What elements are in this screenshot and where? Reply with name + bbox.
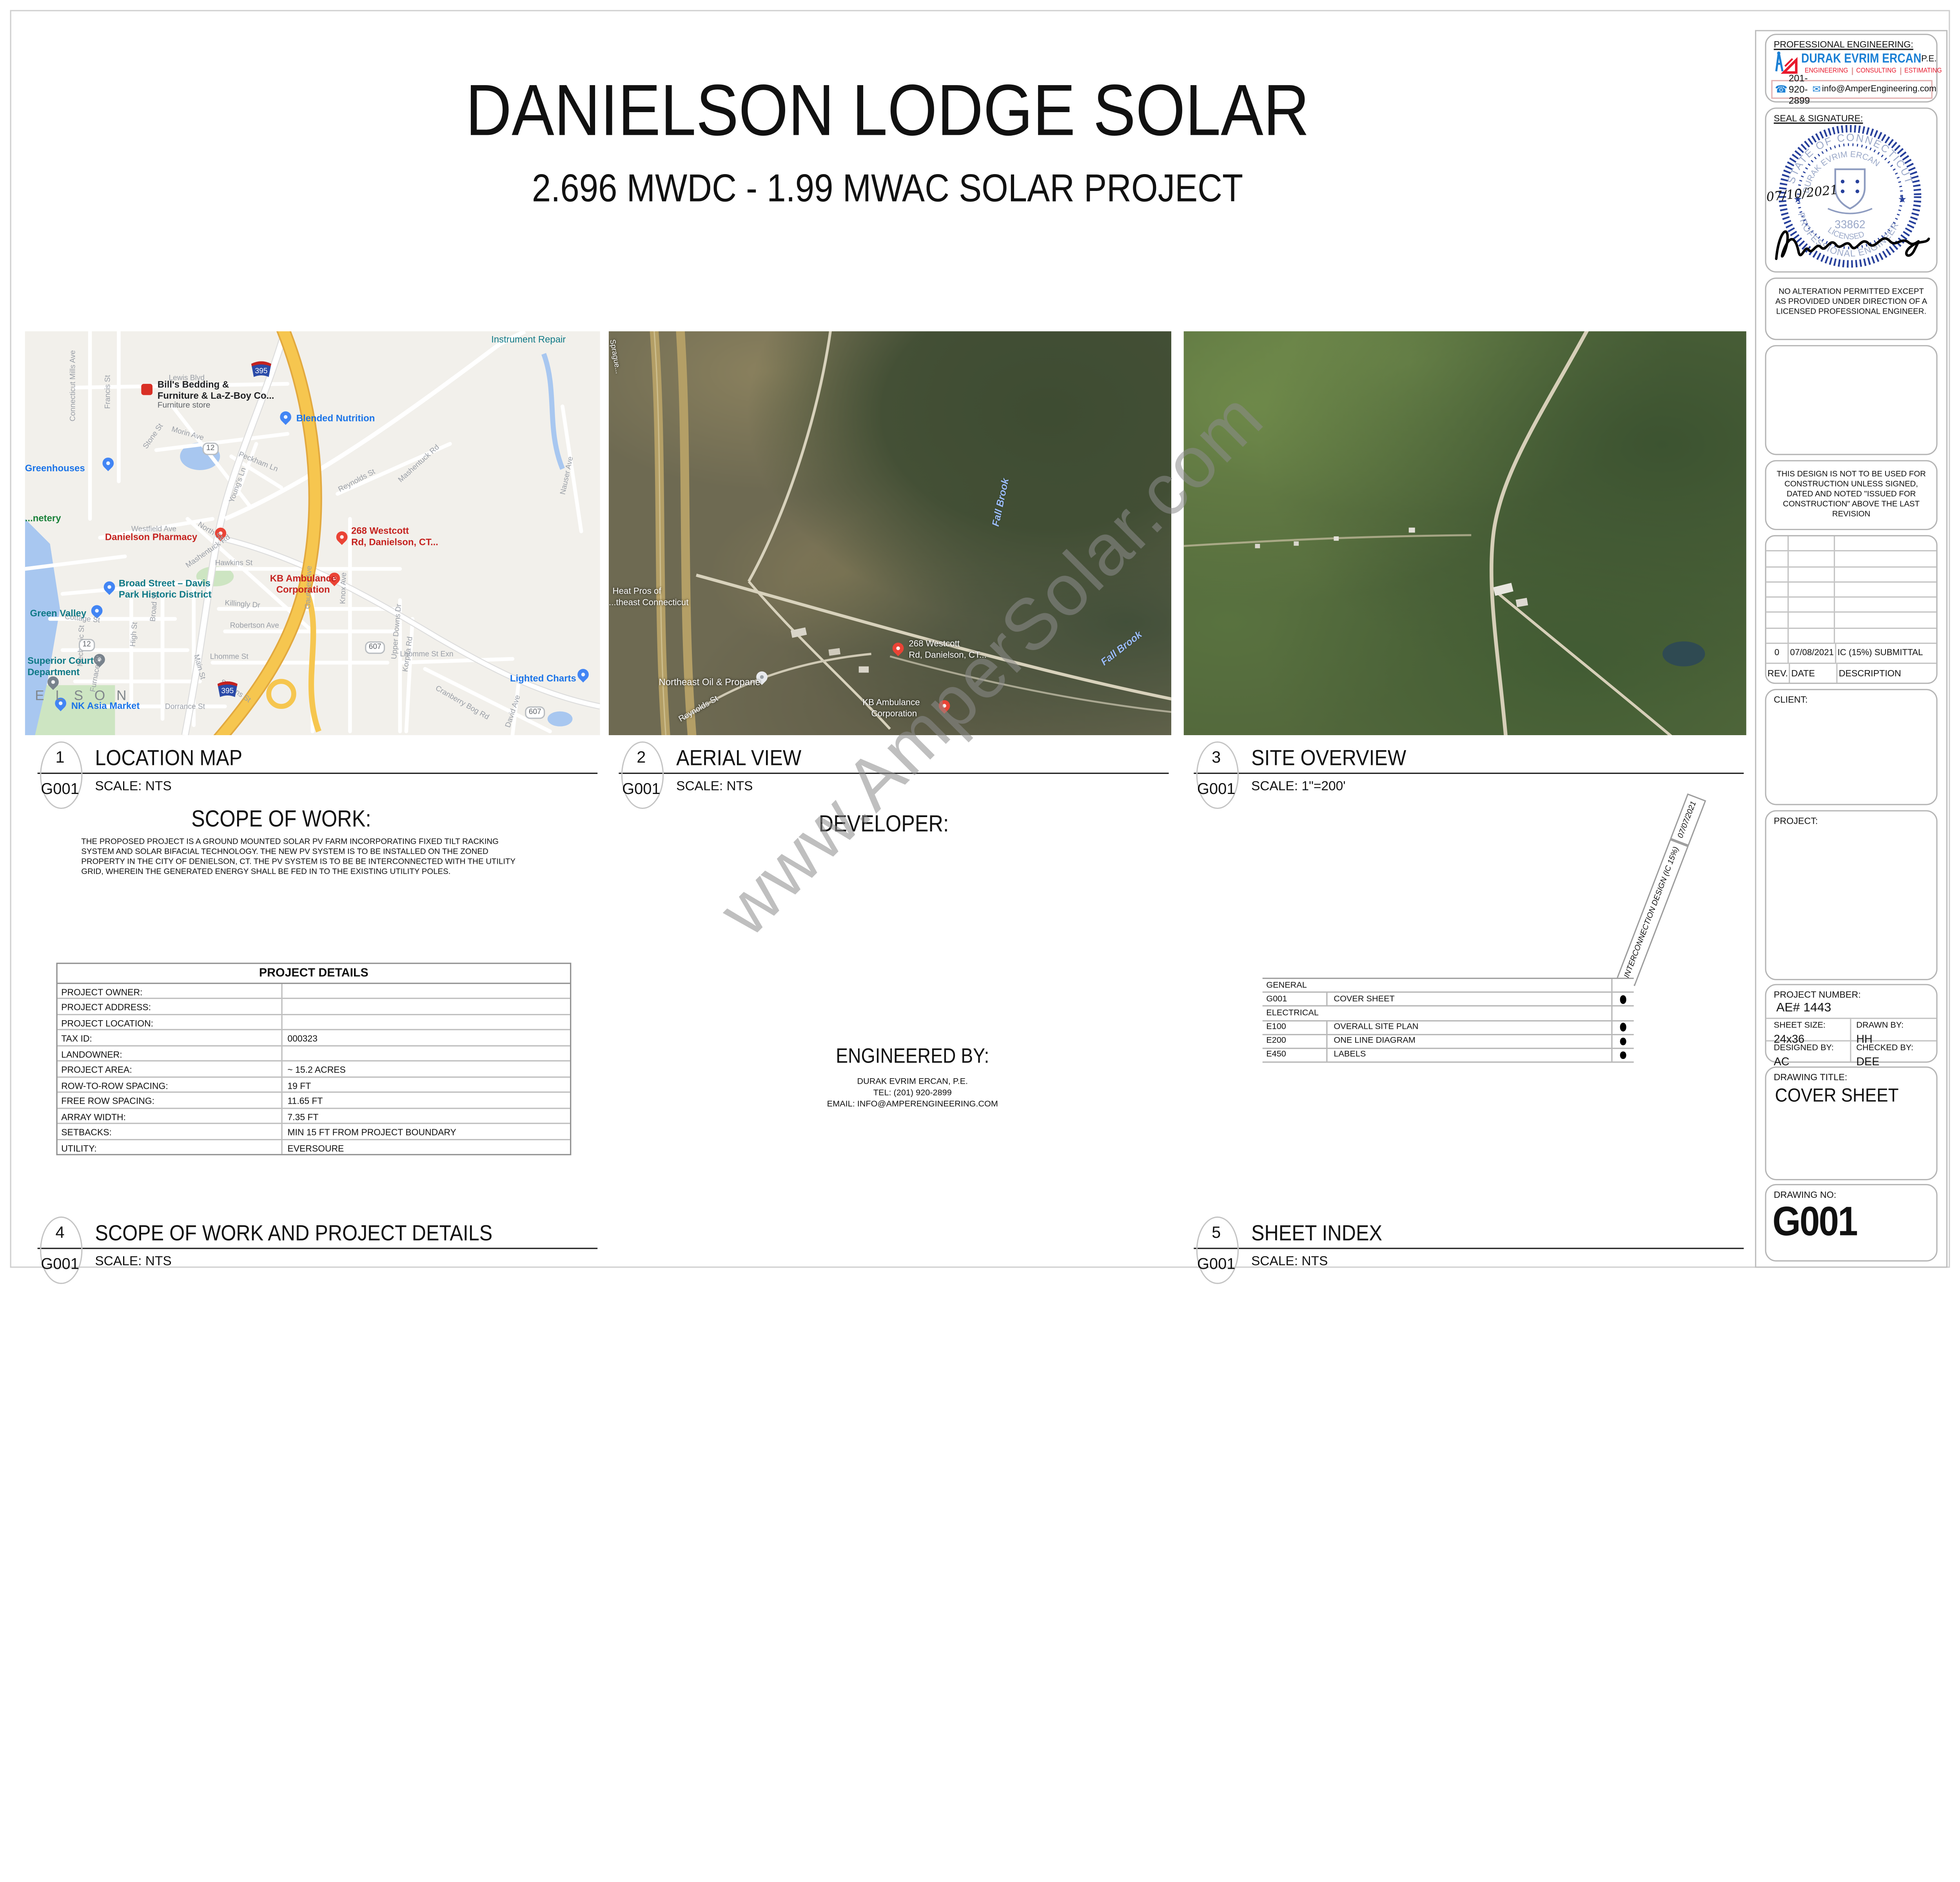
street-label: Knox Ave — [340, 572, 348, 604]
route-shield: 607 — [525, 707, 545, 719]
seal-signature-label: SEAL & SIGNATURE: — [1774, 113, 1863, 124]
panel-header-site-overview: 3 G001 SITE OVERVIEW SCALE: 1"=200' — [1194, 740, 1744, 798]
checked-by-value: DEE — [1856, 1055, 1913, 1068]
poi-label: Furniture store — [158, 401, 211, 412]
panel-number: 3 — [1196, 748, 1236, 767]
sheet-index-table: GENERAL G001COVER SHEET ELECTRICAL E100O… — [1263, 978, 1634, 1063]
engineer-name: DURAK EVRIM ERCAN, P.E. — [737, 1078, 1087, 1086]
project-title: DANIELSON LODGE SOLAR — [227, 69, 1547, 153]
empty-note-box — [1765, 345, 1938, 455]
panel-header-location-map: 1 G001 LOCATION MAP SCALE: NTS — [38, 740, 598, 798]
client-box: CLIENT: — [1765, 689, 1938, 805]
revision-empty-row — [1766, 598, 1936, 613]
route-shield: 12 — [203, 443, 218, 455]
table-row: SETBACKS:MIN 15 FT FROM PROJECT BOUNDARY — [58, 1124, 570, 1140]
interstate-shield-icon: 395 — [250, 359, 272, 378]
street-label: Lhomme St — [210, 654, 249, 661]
index-sheet-row: G001COVER SHEET — [1263, 993, 1634, 1007]
table-row: PROJECT AREA:~ 15.2 ACRES — [58, 1062, 570, 1077]
panel-number: 5 — [1196, 1223, 1236, 1242]
professional-engineering-label: PROFESSIONAL ENGINEERING: — [1774, 39, 1913, 50]
cover-sheet: DANIELSON LODGE SOLAR 2.696 MWDC - 1.99 … — [0, 0, 1960, 1306]
street-label: Dorrance St — [165, 704, 205, 711]
aerial-label: ...theast Connecticut — [609, 599, 689, 609]
drawn-by-value: HH — [1856, 1033, 1904, 1045]
panel-sheet-code: G001 — [40, 780, 80, 798]
firm-pe: P.E. — [1921, 55, 1936, 64]
included-dot-icon — [1620, 1023, 1626, 1032]
poi-label: 268 Westcott — [351, 526, 409, 536]
revision-table: 0 07/08/2021 IC (15%) SUBMITTAL REV. DAT… — [1765, 535, 1938, 684]
index-section-row: ELECTRICAL — [1263, 1007, 1634, 1021]
checked-by-cell: CHECKED BY:DEE — [1856, 1044, 1913, 1068]
panel-sheet-code: G001 — [1196, 1255, 1236, 1273]
designed-by-cell: DESIGNED BY:AC — [1774, 1044, 1834, 1068]
svg-text:★: ★ — [1898, 194, 1907, 205]
table-row: TAX ID:000323 — [58, 1031, 570, 1046]
revision-empty-row — [1766, 552, 1936, 567]
pe-signature — [1771, 219, 1931, 269]
panel-title: LOCATION MAP — [95, 745, 242, 772]
project-details-title: PROJECT DETAILS — [58, 964, 570, 984]
email-icon: ✉ — [1810, 84, 1822, 95]
panel-title: SCOPE OF WORK AND PROJECT DETAILS — [95, 1220, 492, 1246]
poi-label: KB Ambulance — [270, 574, 336, 584]
included-dot-icon — [1620, 1051, 1626, 1059]
table-row: ARRAY WIDTH:7.35 FT — [58, 1108, 570, 1124]
firm-name: DURAK EVRIM ERCAN — [1801, 51, 1921, 66]
poi-label: Lighted Charts — [510, 674, 576, 684]
engineer-email: EMAIL: INFO@AMPERENGINEERING.COM — [737, 1100, 1087, 1109]
firm-phone: 201-920-2899 — [1789, 73, 1810, 106]
drawing-number-box: DRAWING NO: G001 — [1765, 1184, 1938, 1262]
project-box: PROJECT: — [1765, 810, 1938, 980]
drawing-title-label: DRAWING TITLE: — [1774, 1072, 1847, 1083]
no-alteration-note: NO ALTERATION PERMITTED EXCEPT AS PROVID… — [1773, 287, 1930, 318]
street-label: Lhomme St Exn — [400, 651, 453, 659]
construction-note-box: THIS DESIGN IS NOT TO BE USED FOR CONSTR… — [1765, 460, 1938, 530]
svg-text:395: 395 — [255, 367, 267, 375]
poi-label: Superior Court — [27, 656, 94, 667]
svg-text:395: 395 — [221, 687, 234, 695]
client-label: CLIENT: — [1774, 694, 1808, 705]
table-row: FREE ROW SPACING:11.65 FT — [58, 1093, 570, 1109]
aerial-label: Heat Pros of — [613, 588, 661, 598]
drawn-by-cell: DRAWN BY:HH — [1856, 1021, 1904, 1045]
drawing-number-value: G001 — [1773, 1198, 1857, 1245]
panel-title: AERIAL VIEW — [676, 745, 801, 772]
panel-sheet-code: G001 — [40, 1255, 80, 1273]
sheet-size-value: 24x36 — [1774, 1033, 1826, 1045]
panel-sheet-code: G001 — [1196, 780, 1236, 798]
revision-empty-row — [1766, 582, 1936, 598]
panel-scale: SCALE: NTS — [1251, 1254, 1328, 1269]
revision-header-row: REV. DATE DESCRIPTION — [1766, 664, 1936, 683]
panel-title: SITE OVERVIEW — [1251, 745, 1406, 772]
index-sheet-row: E200ONE LINE DIAGRAM — [1263, 1035, 1634, 1049]
project-subtitle: 2.696 MWDC - 1.99 MWAC SOLAR PROJECT — [227, 166, 1547, 211]
poi-label: ...netery — [25, 514, 61, 524]
panel-number: 2 — [621, 748, 661, 767]
street-label: Francis St — [105, 375, 113, 409]
panel-scale: SCALE: NTS — [676, 779, 753, 794]
construction-note: THIS DESIGN IS NOT TO BE USED FOR CONSTR… — [1773, 470, 1930, 520]
poi-label: NK Asia Market — [71, 701, 140, 712]
panel-title: SHEET INDEX — [1251, 1220, 1382, 1246]
project-number-box: PROJECT NUMBER: AE# 1443 SHEET SIZE:24x3… — [1765, 984, 1938, 1063]
poi-label: Rd, Danielson, CT... — [351, 537, 438, 547]
panel-scale: SCALE: NTS — [95, 1254, 171, 1269]
table-row: LANDOWNER: — [58, 1046, 570, 1062]
location-map-image: Connecticut Mills Ave Francis St Lewis B… — [25, 331, 600, 735]
project-label: PROJECT: — [1774, 815, 1818, 827]
revision-empty-row — [1766, 536, 1936, 552]
professional-engineering-box: PROFESSIONAL ENGINEERING: DURAK EVRIM ER… — [1765, 34, 1938, 102]
scope-of-work-body: THE PROPOSED PROJECT IS A GROUND MOUNTED… — [81, 837, 524, 877]
poi-label: Greenhouses — [25, 464, 85, 474]
drawing-title-value: COVER SHEET — [1775, 1085, 1898, 1106]
street-label: Connecticut Mills Ave — [70, 350, 78, 421]
table-row: UTILITY:EVERSOURE — [58, 1140, 570, 1154]
drawing-title-box: DRAWING TITLE: COVER SHEET — [1765, 1066, 1938, 1180]
panel-number: 4 — [40, 1223, 80, 1242]
engineer-tel: TEL: (201) 920-2899 — [737, 1089, 1087, 1097]
panel-header-scope: 4 G001 SCOPE OF WORK AND PROJECT DETAILS… — [38, 1215, 598, 1273]
included-dot-icon — [1620, 995, 1626, 1003]
firm-contact: ☎ 201-920-2899 ✉ info@AmperEngineering.c… — [1771, 80, 1932, 99]
panel-sheet-code: G001 — [621, 780, 661, 798]
interstate-shield-icon: 395 — [216, 679, 239, 698]
table-row: PROJECT ADDRESS: — [58, 999, 570, 1015]
poi-label: Green Valley — [30, 609, 87, 619]
store-logo-icon — [141, 384, 152, 395]
street-label: Robertson Ave — [230, 623, 279, 630]
revision-empty-row — [1766, 567, 1936, 582]
revision-empty-row — [1766, 613, 1936, 629]
route-shield: 607 — [365, 641, 385, 654]
firm-services: ENGINEERINGCONSULTINGESTIMATING — [1801, 67, 1945, 75]
poi-label: Danielson Pharmacy — [105, 532, 197, 543]
table-row: PROJECT OWNER: — [58, 984, 570, 1000]
phone-icon: ☎ — [1773, 84, 1789, 95]
street-label: Hawkins St — [215, 560, 252, 568]
poi-label: Bill's Bedding & — [158, 380, 229, 390]
project-number-value: AE# 1443 — [1776, 1001, 1831, 1015]
revision-row: 0 07/08/2021 IC (15%) SUBMITTAL — [1766, 644, 1936, 664]
poi-label: Corporation — [276, 585, 330, 595]
aerial-label: Northeast Oil & Propane — [659, 678, 760, 688]
index-sheet-row: E450LABELS — [1263, 1049, 1634, 1063]
panel-scale: SCALE: 1"=200' — [1251, 779, 1346, 794]
route-shield: 12 — [79, 639, 94, 651]
included-dot-icon — [1620, 1037, 1626, 1045]
poi-label: Broad Street – Davis — [119, 579, 211, 589]
panel-scale: SCALE: NTS — [95, 779, 171, 794]
scope-of-work-heading: SCOPE OF WORK: — [138, 805, 425, 833]
poi-label: Instrument Repair — [491, 335, 566, 345]
project-details-table: PROJECT DETAILS PROJECT OWNER: PROJECT A… — [56, 963, 571, 1155]
no-alteration-note-box: NO ALTERATION PERMITTED EXCEPT AS PROVID… — [1765, 278, 1938, 340]
designed-by-value: AC — [1774, 1055, 1834, 1068]
revision-empty-row — [1766, 629, 1936, 644]
project-number-label: PROJECT NUMBER: — [1774, 989, 1861, 1000]
table-row: ROW-TO-ROW SPACING:19 FT — [58, 1077, 570, 1093]
engineered-by-heading: ENGINEERED BY: — [759, 1045, 1067, 1069]
poi-label: Department — [27, 667, 80, 677]
panel-header-sheet-index: 5 G001 SHEET INDEX SCALE: NTS — [1194, 1215, 1744, 1273]
poi-label: Furniture & La-Z-Boy Co... — [158, 391, 274, 401]
firm-email: info@AmperEngineering.com — [1822, 85, 1936, 94]
sheet-size-cell: SHEET SIZE:24x36 — [1774, 1021, 1826, 1045]
table-row: PROJECT LOCATION: — [58, 1015, 570, 1031]
poi-label: Blended Nutrition — [296, 414, 375, 424]
index-sheet-row: E100OVERALL SITE PLAN — [1263, 1021, 1634, 1035]
panel-number: 1 — [40, 748, 80, 767]
index-section-row: GENERAL — [1263, 979, 1634, 993]
poi-label: Park Historic District — [119, 590, 212, 600]
